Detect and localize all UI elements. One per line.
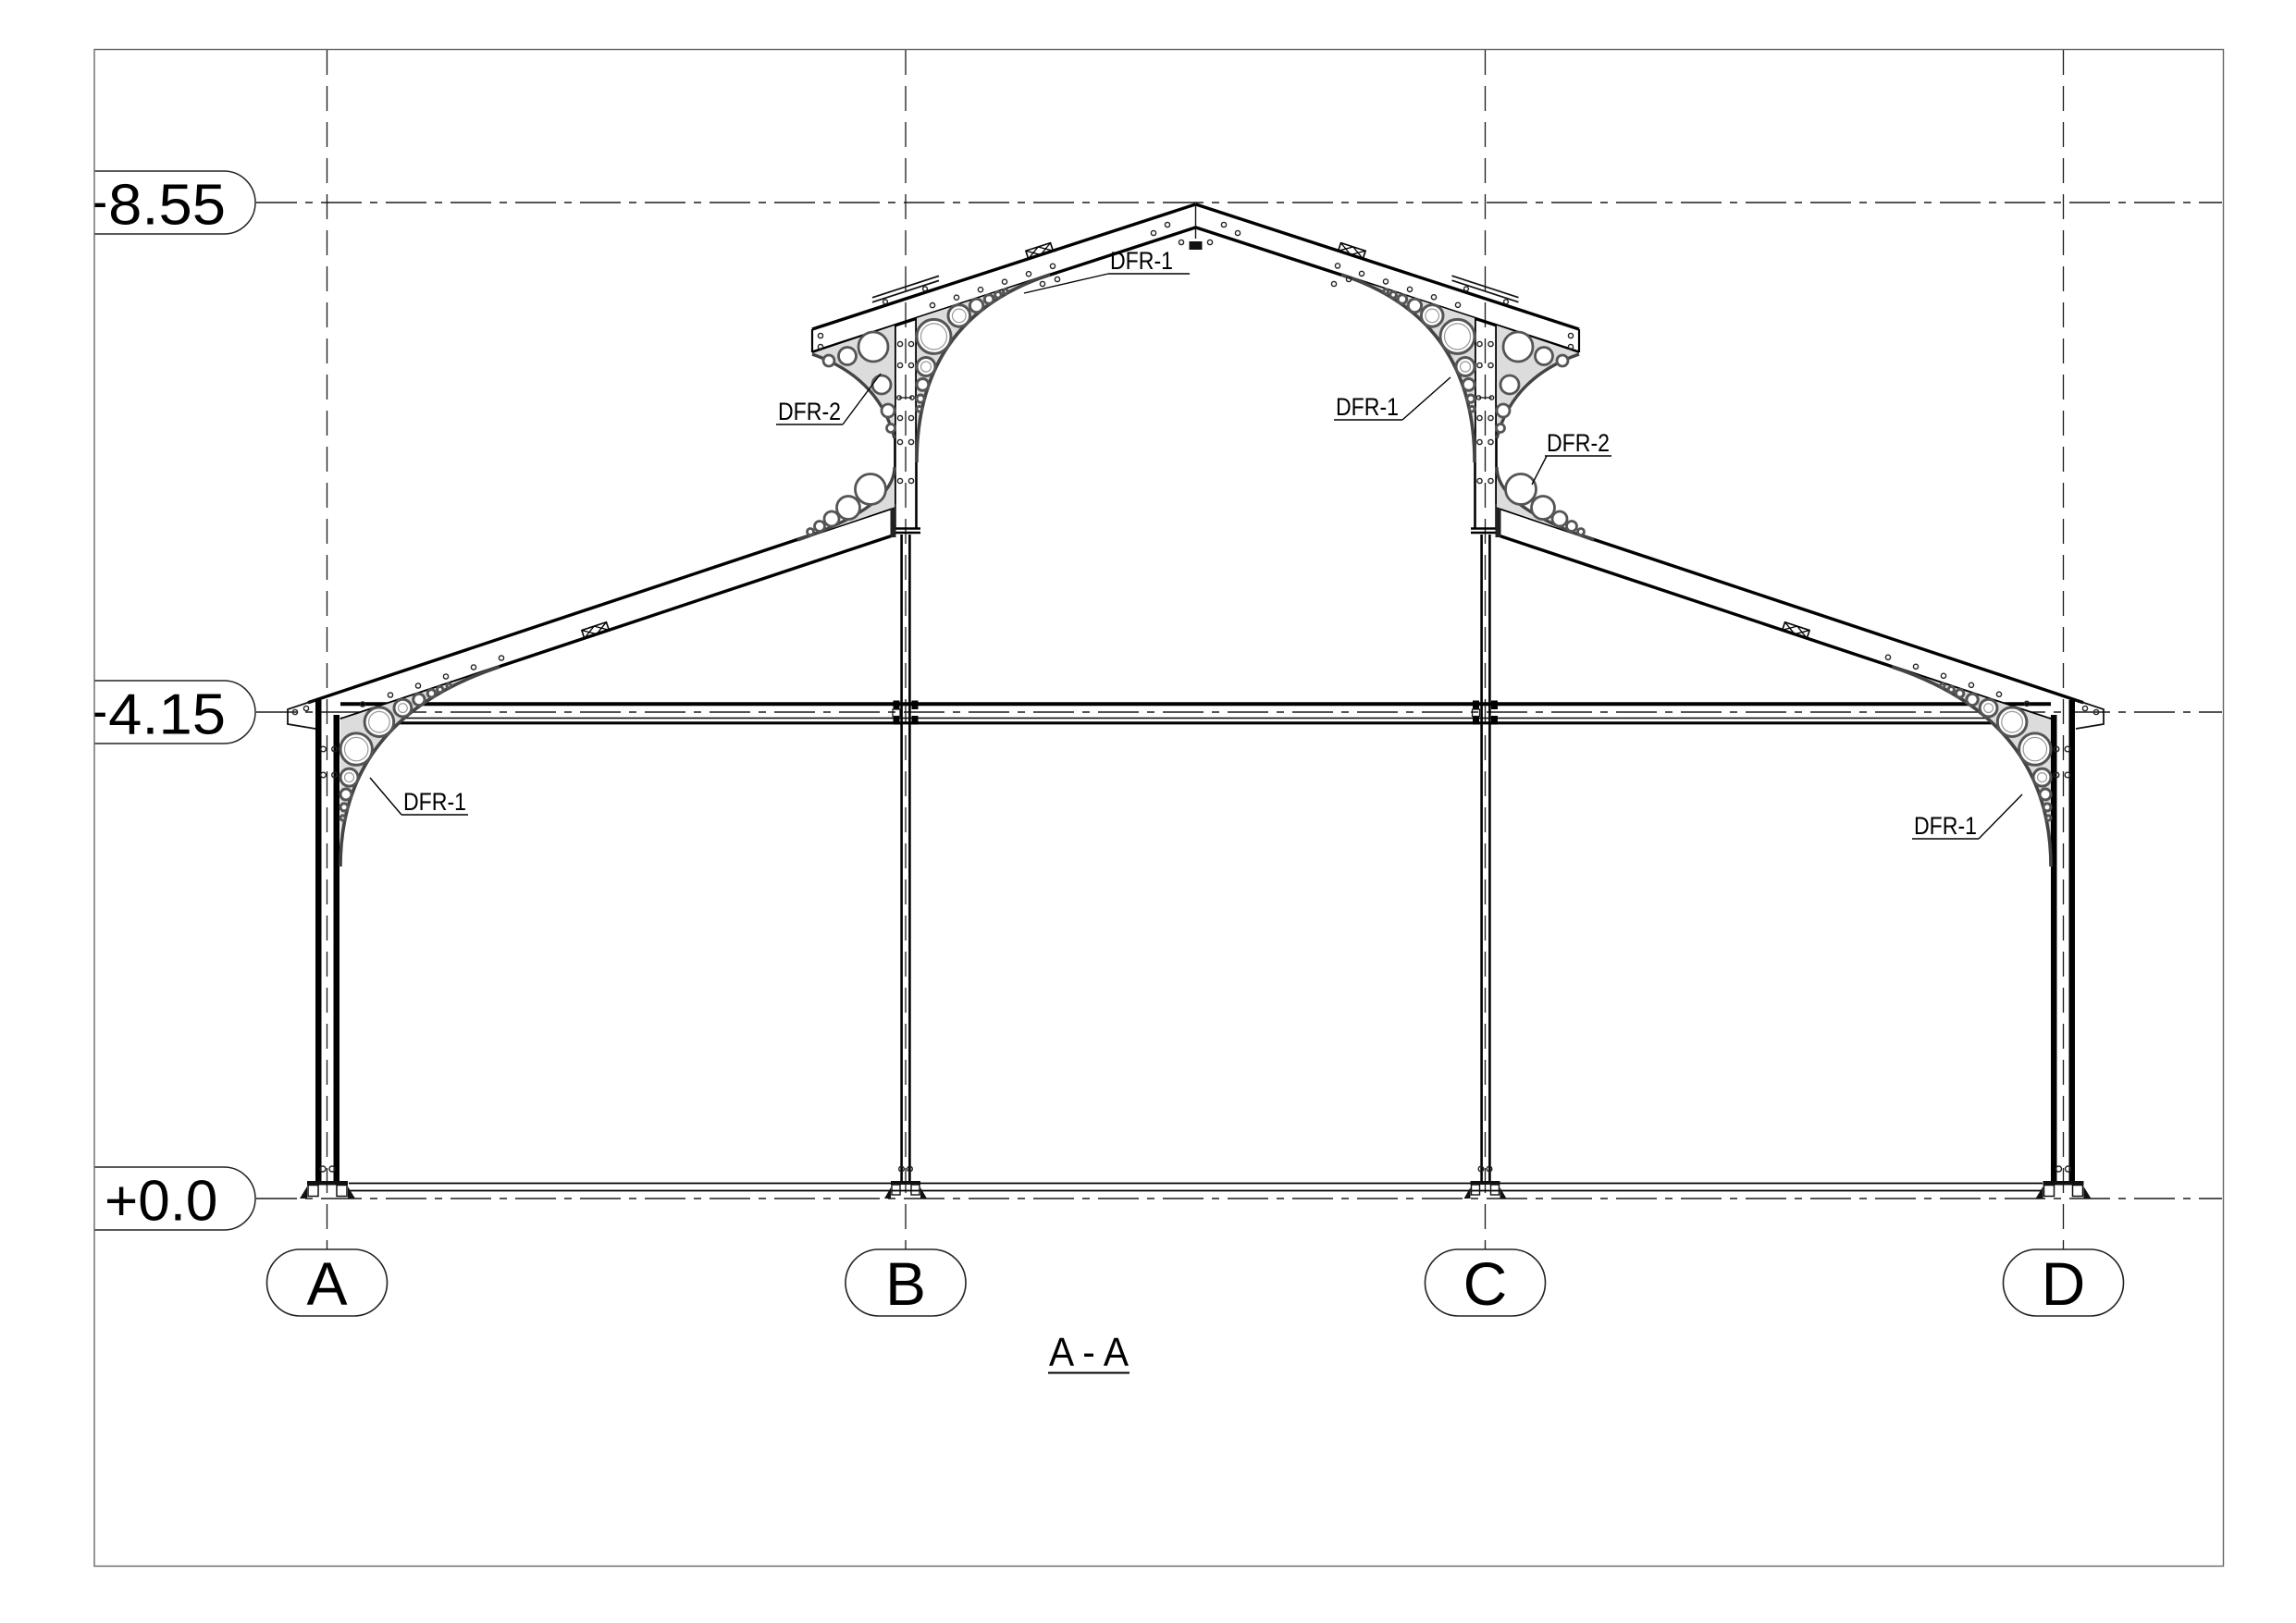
svg-text:DFR-1: DFR-1 [403, 788, 466, 816]
svg-text:B: B [885, 1249, 926, 1318]
svg-text:D: D [2042, 1249, 2086, 1318]
svg-text:DFR-2: DFR-2 [778, 398, 841, 425]
svg-text:+4.15: +4.15 [73, 683, 226, 747]
svg-text:+8.55: +8.55 [73, 174, 226, 238]
svg-text:A: A [306, 1249, 347, 1318]
svg-text:DFR-2: DFR-2 [1547, 429, 1610, 457]
svg-text:DFR-1: DFR-1 [1110, 247, 1173, 275]
svg-text:DFR-1: DFR-1 [1914, 812, 1977, 840]
svg-text:DFR-1: DFR-1 [1336, 393, 1399, 421]
svg-text:C: C [1463, 1249, 1508, 1318]
svg-text:A - A: A - A [1049, 1330, 1129, 1375]
svg-text:+0.0: +0.0 [105, 1170, 217, 1234]
